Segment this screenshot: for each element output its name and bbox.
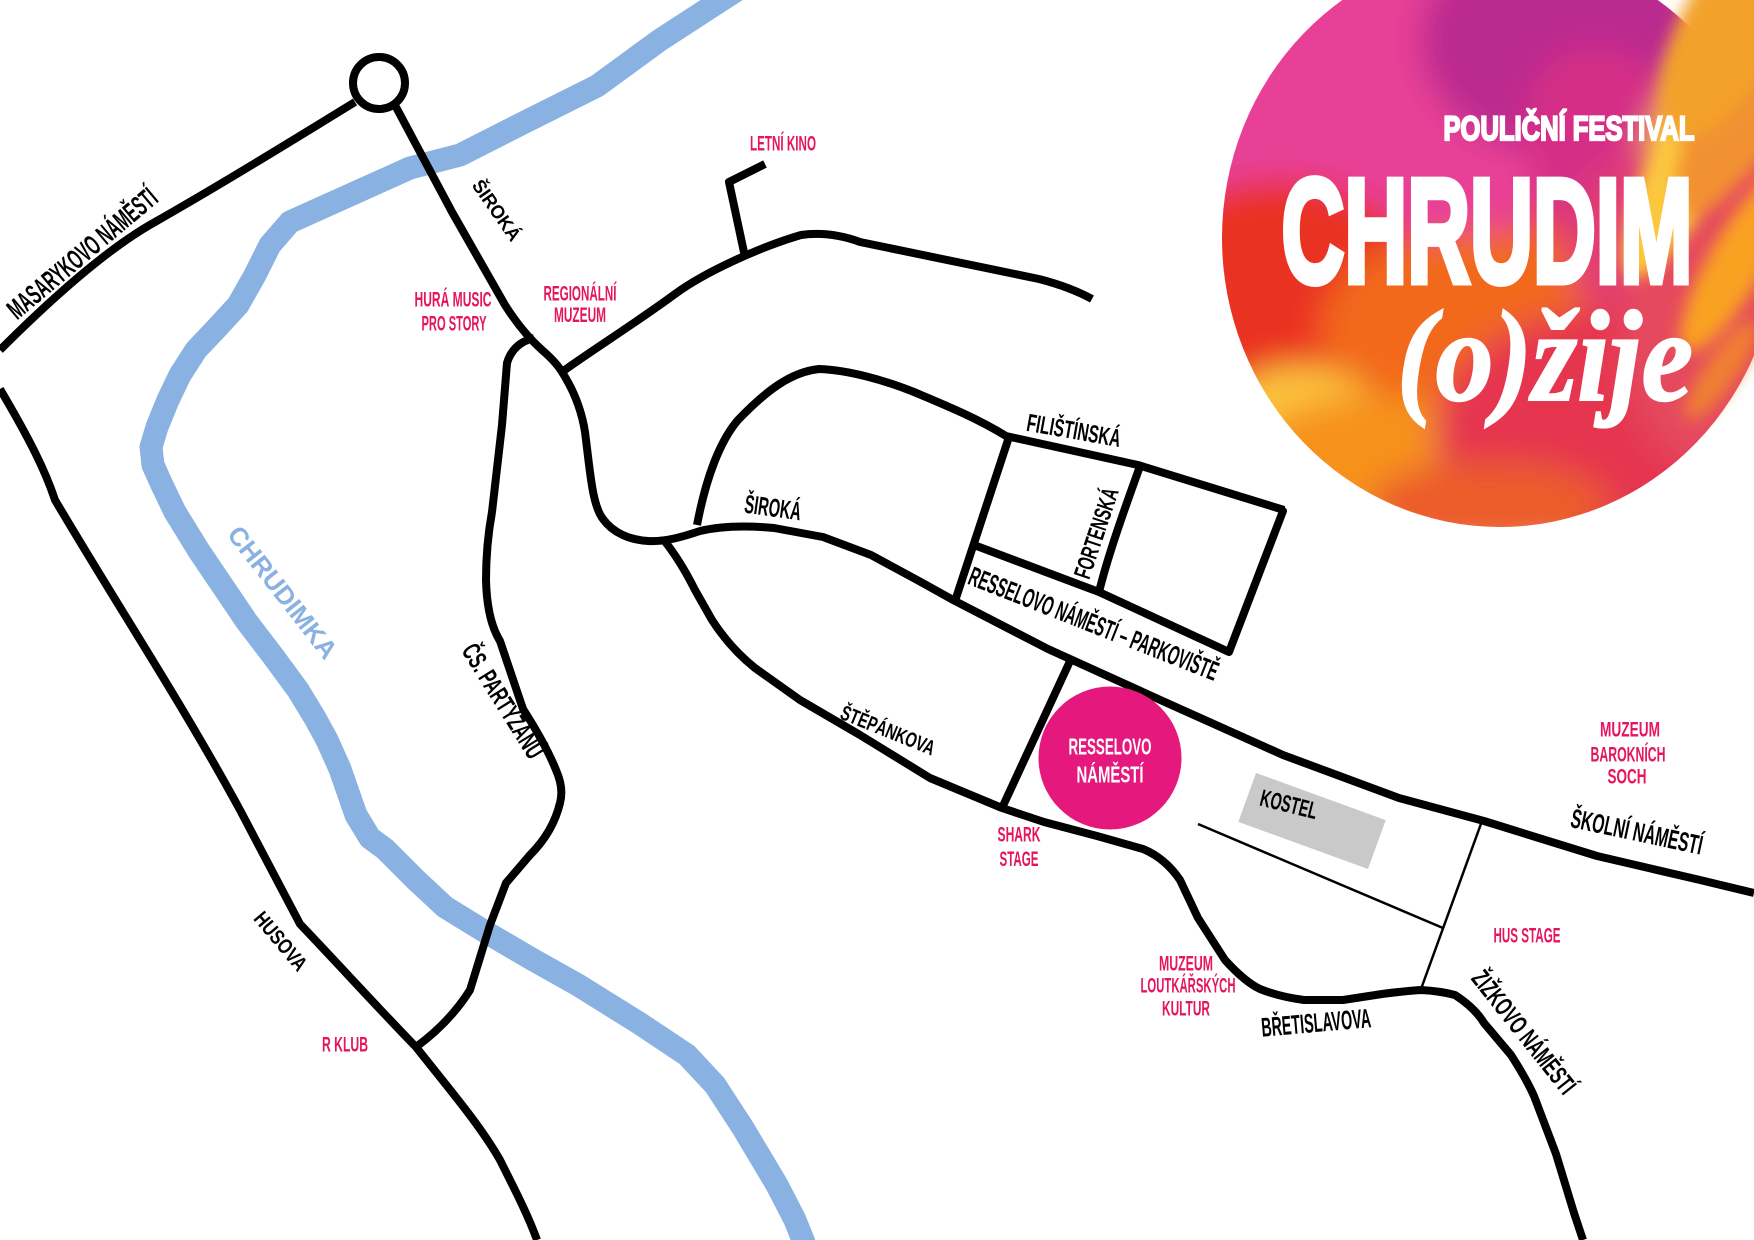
svg-text:POULIČNÍ FESTIVAL: POULIČNÍ FESTIVAL: [1444, 109, 1695, 148]
svg-text:HURÁ MUSIC: HURÁ MUSIC: [415, 289, 492, 312]
svg-text:LOUTKÁŘSKÝCH: LOUTKÁŘSKÝCH: [1141, 974, 1236, 998]
svg-text:MUZEUM: MUZEUM: [1600, 719, 1660, 742]
svg-text:R KLUB: R KLUB: [322, 1034, 368, 1057]
svg-text:REGIONÁLNÍ: REGIONÁLNÍ: [544, 283, 618, 306]
svg-text:(o)žije: (o)žije: [1397, 285, 1693, 429]
svg-text:BAROKNÍCH: BAROKNÍCH: [1591, 744, 1666, 767]
svg-text:RESSELOVO: RESSELOVO: [1069, 734, 1152, 760]
svg-text:KULTUR: KULTUR: [1162, 998, 1210, 1021]
svg-text:MUZEUM: MUZEUM: [1159, 953, 1213, 976]
svg-text:LETNÍ KINO: LETNÍ KINO: [750, 133, 816, 156]
svg-text:PRO STORY: PRO STORY: [422, 313, 487, 336]
svg-text:HUS STAGE: HUS STAGE: [1494, 925, 1561, 948]
svg-text:SHARK: SHARK: [998, 824, 1041, 847]
svg-text:SOCH: SOCH: [1608, 766, 1647, 789]
svg-text:NÁMĚSTÍ: NÁMĚSTÍ: [1077, 761, 1144, 788]
svg-text:STAGE: STAGE: [1000, 848, 1039, 871]
svg-text:MUZEUM: MUZEUM: [554, 304, 606, 327]
